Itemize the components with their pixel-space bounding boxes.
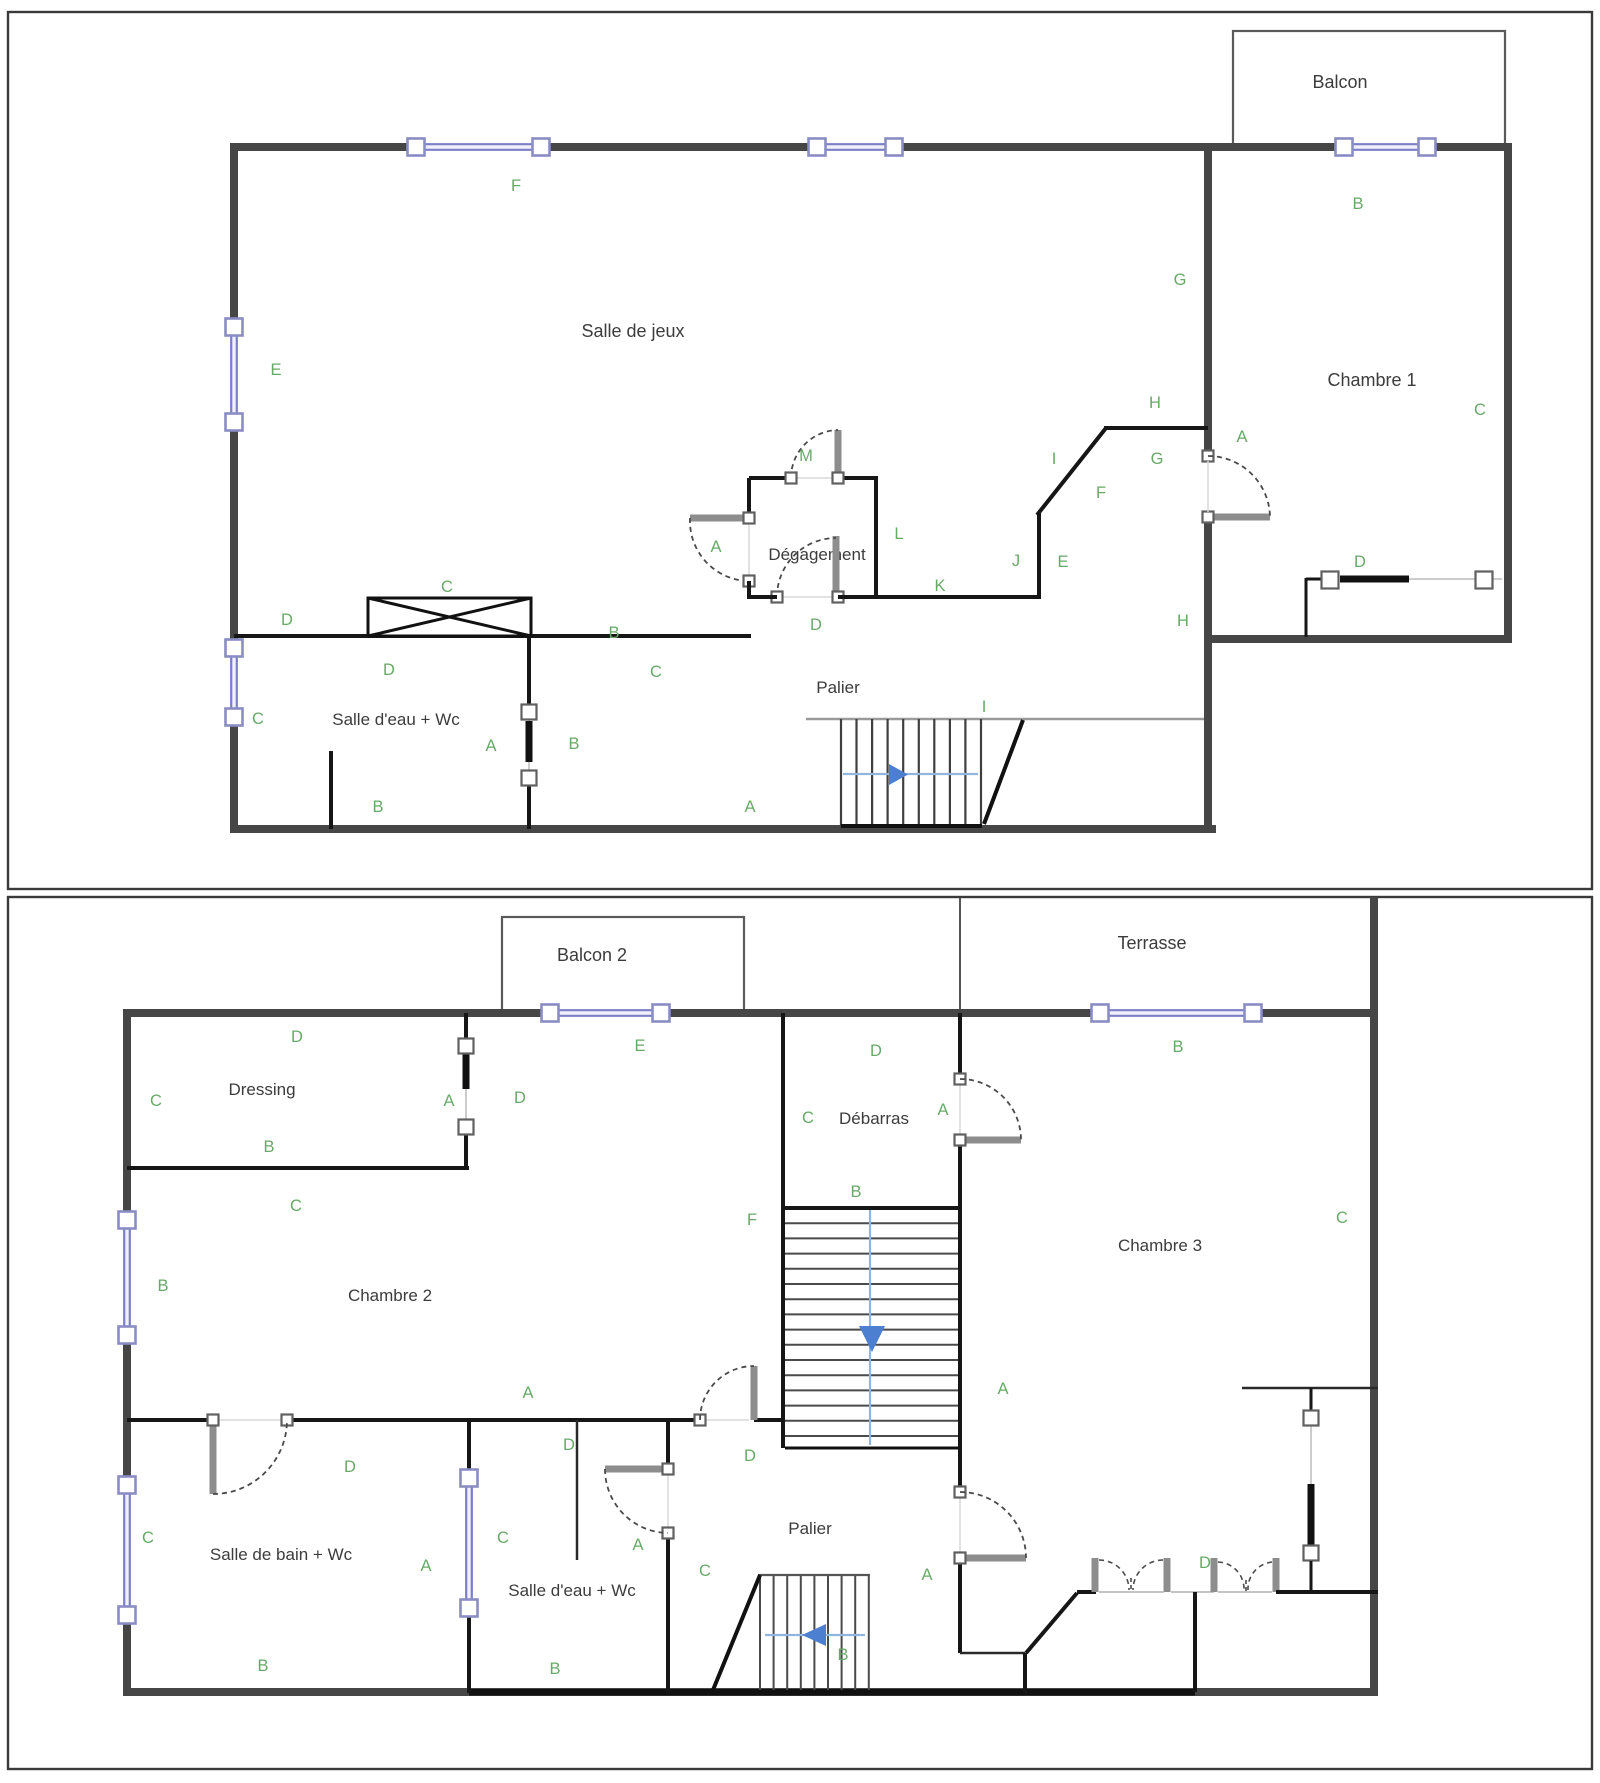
svg-text:Salle de bain + Wc: Salle de bain + Wc bbox=[210, 1545, 353, 1564]
svg-text:A: A bbox=[1236, 428, 1247, 446]
svg-text:Chambre 1: Chambre 1 bbox=[1327, 370, 1416, 390]
svg-text:Balcon 2: Balcon 2 bbox=[557, 945, 627, 965]
svg-text:E: E bbox=[270, 361, 281, 379]
svg-text:Chambre 2: Chambre 2 bbox=[348, 1286, 432, 1305]
svg-text:B: B bbox=[263, 1138, 274, 1156]
svg-text:C: C bbox=[802, 1109, 814, 1127]
svg-text:Débarras: Débarras bbox=[839, 1109, 909, 1128]
svg-text:D: D bbox=[344, 1458, 356, 1476]
svg-text:Palier: Palier bbox=[788, 1519, 832, 1538]
svg-text:J: J bbox=[1012, 552, 1020, 570]
svg-text:D: D bbox=[1199, 1554, 1211, 1572]
svg-text:B: B bbox=[837, 1646, 848, 1664]
svg-text:A: A bbox=[420, 1557, 431, 1575]
svg-text:B: B bbox=[568, 735, 579, 753]
svg-text:B: B bbox=[1172, 1038, 1183, 1056]
svg-text:D: D bbox=[810, 616, 822, 634]
svg-text:Salle d'eau + Wc: Salle d'eau + Wc bbox=[332, 710, 460, 729]
svg-text:B: B bbox=[850, 1183, 861, 1201]
svg-text:Chambre 3: Chambre 3 bbox=[1118, 1236, 1202, 1255]
svg-text:C: C bbox=[1474, 401, 1486, 419]
svg-text:B: B bbox=[549, 1660, 560, 1678]
svg-text:F: F bbox=[511, 177, 521, 195]
svg-text:B: B bbox=[257, 1657, 268, 1675]
svg-text:F: F bbox=[1096, 484, 1106, 502]
svg-text:D: D bbox=[744, 1447, 756, 1465]
svg-text:Dressing: Dressing bbox=[228, 1080, 295, 1099]
svg-text:D: D bbox=[870, 1042, 882, 1060]
svg-text:Salle de jeux: Salle de jeux bbox=[581, 321, 684, 341]
svg-text:G: G bbox=[1151, 450, 1164, 468]
svg-text:H: H bbox=[1177, 612, 1189, 630]
svg-text:K: K bbox=[934, 577, 945, 595]
svg-text:A: A bbox=[937, 1101, 948, 1119]
svg-text:Dégagement: Dégagement bbox=[768, 545, 866, 564]
svg-text:C: C bbox=[150, 1092, 162, 1110]
svg-text:D: D bbox=[563, 1436, 575, 1454]
svg-text:I: I bbox=[1052, 450, 1057, 468]
svg-text:A: A bbox=[485, 737, 496, 755]
svg-text:B: B bbox=[1352, 195, 1363, 213]
svg-text:H: H bbox=[1149, 394, 1161, 412]
svg-text:A: A bbox=[744, 798, 755, 816]
svg-text:A: A bbox=[997, 1380, 1008, 1398]
svg-text:C: C bbox=[699, 1562, 711, 1580]
svg-text:C: C bbox=[650, 663, 662, 681]
svg-text:F: F bbox=[747, 1211, 757, 1229]
svg-text:A: A bbox=[710, 538, 721, 556]
svg-text:B: B bbox=[157, 1277, 168, 1295]
svg-text:G: G bbox=[1174, 271, 1187, 289]
svg-text:D: D bbox=[291, 1028, 303, 1046]
svg-text:C: C bbox=[252, 710, 264, 728]
svg-text:D: D bbox=[281, 611, 293, 629]
svg-text:C: C bbox=[142, 1529, 154, 1547]
svg-text:Balcon: Balcon bbox=[1312, 72, 1367, 92]
svg-text:Salle d'eau + Wc: Salle d'eau + Wc bbox=[508, 1581, 636, 1600]
svg-text:A: A bbox=[632, 1536, 643, 1554]
svg-text:Palier: Palier bbox=[816, 678, 860, 697]
svg-text:I: I bbox=[982, 698, 987, 716]
svg-text:E: E bbox=[634, 1037, 645, 1055]
svg-text:C: C bbox=[497, 1529, 509, 1547]
svg-text:C: C bbox=[441, 578, 453, 596]
svg-text:A: A bbox=[522, 1384, 533, 1402]
svg-text:C: C bbox=[1336, 1209, 1348, 1227]
svg-text:D: D bbox=[514, 1089, 526, 1107]
svg-text:B: B bbox=[372, 798, 383, 816]
svg-text:A: A bbox=[921, 1566, 932, 1584]
svg-text:D: D bbox=[383, 661, 395, 679]
svg-text:A: A bbox=[443, 1092, 454, 1110]
svg-text:M: M bbox=[799, 447, 813, 465]
svg-text:E: E bbox=[1057, 553, 1068, 571]
svg-text:Terrasse: Terrasse bbox=[1117, 933, 1186, 953]
svg-text:C: C bbox=[290, 1197, 302, 1215]
svg-text:D: D bbox=[1354, 553, 1366, 571]
svg-text:L: L bbox=[894, 525, 903, 543]
svg-text:B: B bbox=[608, 624, 619, 642]
